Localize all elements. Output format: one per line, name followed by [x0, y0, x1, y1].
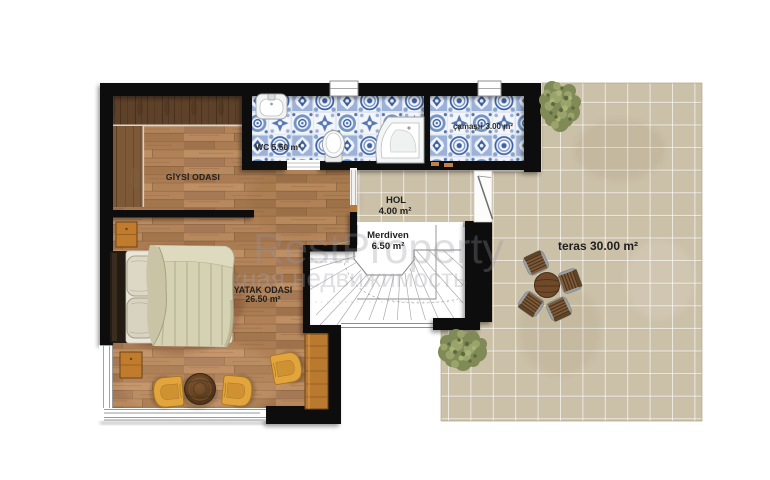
svg-text:HOL: HOL	[386, 195, 406, 206]
svg-text:26.50 m²: 26.50 m²	[245, 294, 280, 304]
svg-text:GİYSİ ODASI: GİYSİ ODASI	[166, 172, 220, 182]
svg-text:çamaşır 3.00 m²: çamaşır 3.00 m²	[453, 122, 513, 131]
svg-text:Merdiven: Merdiven	[367, 230, 409, 241]
svg-text:teras 30.00 m²: teras 30.00 m²	[558, 239, 638, 253]
svg-text:4.00 m²: 4.00 m²	[379, 206, 412, 217]
svg-text:6.50 m²: 6.50 m²	[372, 241, 405, 252]
svg-text:WC 5.50 m²: WC 5.50 m²	[255, 142, 301, 152]
